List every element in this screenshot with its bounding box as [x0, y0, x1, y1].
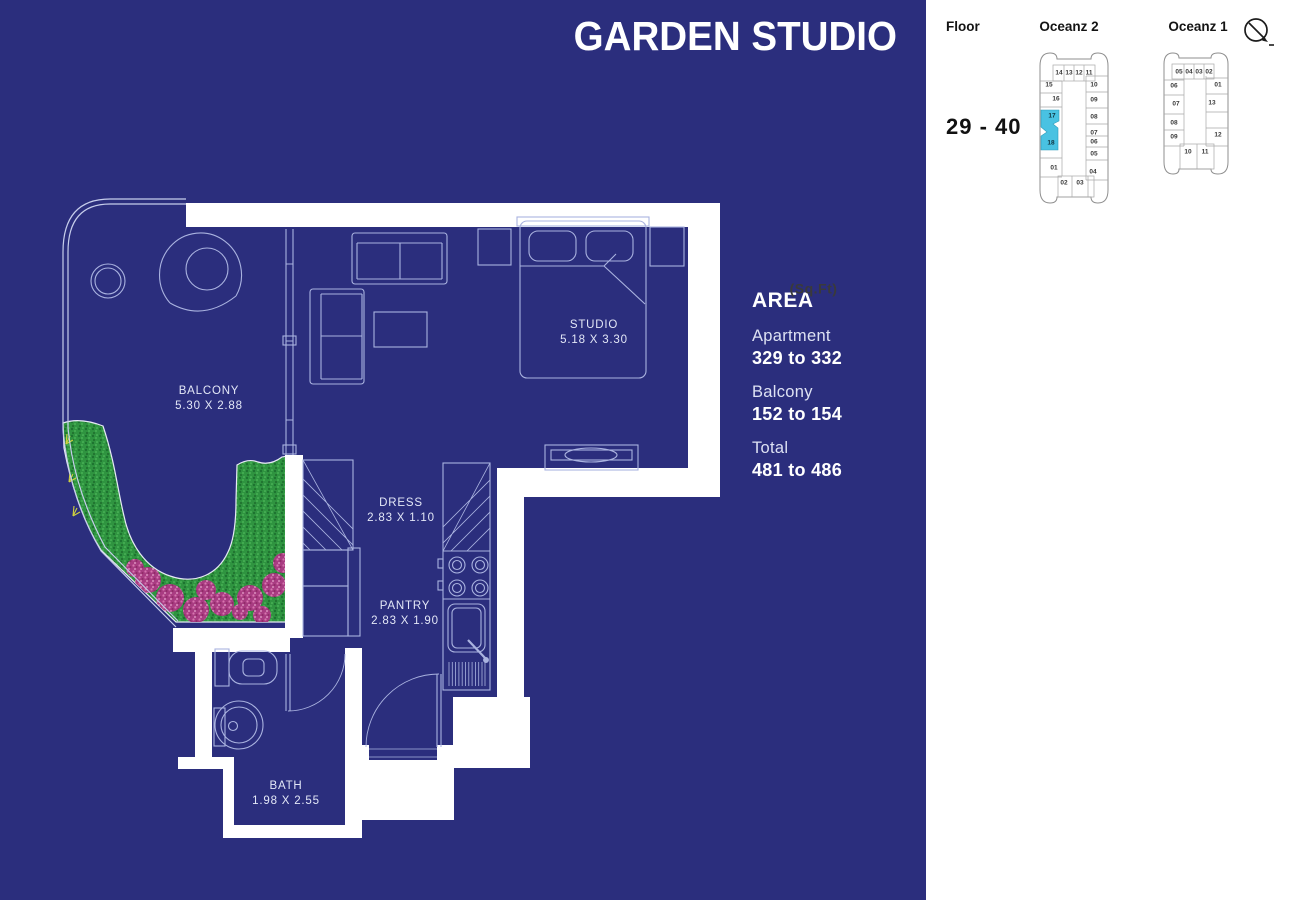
unit-number-09: 09 — [1090, 97, 1097, 104]
unit-number-06: 06 — [1170, 83, 1177, 90]
sink — [448, 604, 488, 686]
room-dims: 5.30 X 2.88 — [175, 399, 243, 414]
balcony-round-table — [91, 264, 125, 298]
area-row-value: 152 to 154 — [752, 404, 842, 425]
room-name: BALCONY — [175, 384, 243, 399]
coffee-table — [374, 312, 427, 347]
tower-plate-oceanz-1: 05040302060107130809121011 — [1160, 48, 1232, 180]
area-heading: AREA (Sq.Ft) — [752, 289, 842, 313]
unit-number-03: 03 — [1076, 180, 1083, 187]
tower-plate-outline — [1036, 48, 1112, 208]
floor-range: 29 - 40 — [946, 114, 1022, 140]
kitchen-counter — [430, 463, 500, 690]
room-name: STUDIO — [560, 318, 628, 333]
unit-number-01: 01 — [1050, 165, 1057, 172]
unit-number-12: 12 — [1214, 132, 1221, 139]
area-unit: (Sq.Ft) — [790, 286, 838, 293]
unit-number-08: 08 — [1090, 114, 1097, 121]
area-row-label: Apartment — [752, 327, 842, 346]
unit-number-10: 10 — [1090, 82, 1097, 89]
room-label-bath: BATH 1.98 X 2.55 — [252, 779, 320, 809]
unit-number-13: 13 — [1208, 100, 1215, 107]
unit-number-05: 05 — [1175, 69, 1182, 76]
wardrobe — [294, 460, 364, 636]
nightstand-left — [478, 229, 511, 265]
area-row-label: Balcony — [752, 383, 842, 402]
unit-number-07: 07 — [1172, 101, 1179, 108]
area-row-apartment: Apartment 329 to 332 — [752, 327, 842, 369]
tower-plate-oceanz-2: 141312111510160917080706180501040203 — [1036, 48, 1112, 208]
unit-number-13: 13 — [1065, 70, 1072, 77]
room-label-pantry: PANTRY 2.83 X 1.90 — [371, 599, 439, 629]
unit-number-16: 16 — [1052, 96, 1059, 103]
bed — [517, 217, 649, 378]
unit-number-05: 05 — [1090, 151, 1097, 158]
unit-number-02: 02 — [1205, 69, 1212, 76]
balcony-garden — [63, 421, 293, 624]
room-dims: 5.18 X 3.30 — [560, 333, 628, 348]
tv-unit — [545, 445, 638, 470]
room-dims: 2.83 X 1.10 — [367, 511, 435, 526]
unit-number-11: 11 — [1202, 149, 1209, 156]
unit-number-06: 06 — [1090, 139, 1097, 146]
bath-door — [286, 654, 345, 711]
floor-label: Floor — [946, 19, 980, 34]
floor-plan-page: GARDEN STUDIO — [0, 0, 926, 900]
unit-number-04: 04 — [1089, 169, 1096, 176]
tower-name-oceanz-1: Oceanz 1 — [1168, 19, 1227, 34]
entrance-door — [366, 674, 441, 757]
area-row-balcony: Balcony 152 to 154 — [752, 383, 842, 425]
room-label-balcony: BALCONY 5.30 X 2.88 — [175, 384, 243, 414]
nightstand-right — [650, 227, 684, 266]
room-label-studio: STUDIO 5.18 X 3.30 — [560, 318, 628, 348]
unit-number-14: 14 — [1055, 70, 1062, 77]
room-name: BATH — [252, 779, 320, 794]
unit-number-15: 15 — [1045, 82, 1052, 89]
area-row-total: Total 481 to 486 — [752, 439, 842, 481]
washbasin — [214, 701, 263, 749]
toilet — [215, 649, 277, 686]
unit-number-11: 11 — [1086, 70, 1093, 77]
area-row-label: Total — [752, 439, 842, 458]
unit-number-10: 10 — [1184, 149, 1191, 156]
area-row-value: 329 to 332 — [752, 348, 842, 369]
area-summary: AREA (Sq.Ft) Apartment 329 to 332 Balcon… — [752, 289, 842, 481]
floor-key-panel: Floor Oceanz 2 Oceanz 1 29 - 40 14131211… — [926, 0, 1316, 900]
sofa — [352, 233, 447, 284]
balcony-lounge-chair — [160, 233, 242, 311]
room-name: DRESS — [367, 496, 435, 511]
unit-number-02: 02 — [1060, 180, 1067, 187]
unit-number-07: 07 — [1090, 130, 1097, 137]
balcony-glass-divider — [283, 229, 296, 455]
unit-number-04: 04 — [1185, 69, 1192, 76]
room-dims: 1.98 X 2.55 — [252, 794, 320, 809]
room-label-dress: DRESS 2.83 X 1.10 — [367, 496, 435, 526]
unit-number-18: 18 — [1047, 140, 1054, 147]
north-arrow-icon — [1243, 16, 1277, 50]
loveseat — [310, 289, 364, 384]
area-row-value: 481 to 486 — [752, 460, 842, 481]
unit-number-09: 09 — [1170, 134, 1177, 141]
unit-number-12: 12 — [1075, 70, 1082, 77]
unit-number-01: 01 — [1214, 82, 1221, 89]
unit-number-08: 08 — [1170, 120, 1177, 127]
tower-name-oceanz-2: Oceanz 2 — [1039, 19, 1098, 34]
unit-number-17: 17 — [1048, 113, 1055, 120]
stove — [438, 557, 488, 596]
room-name: PANTRY — [371, 599, 439, 614]
unit-number-03: 03 — [1195, 69, 1202, 76]
room-dims: 2.83 X 1.90 — [371, 614, 439, 629]
